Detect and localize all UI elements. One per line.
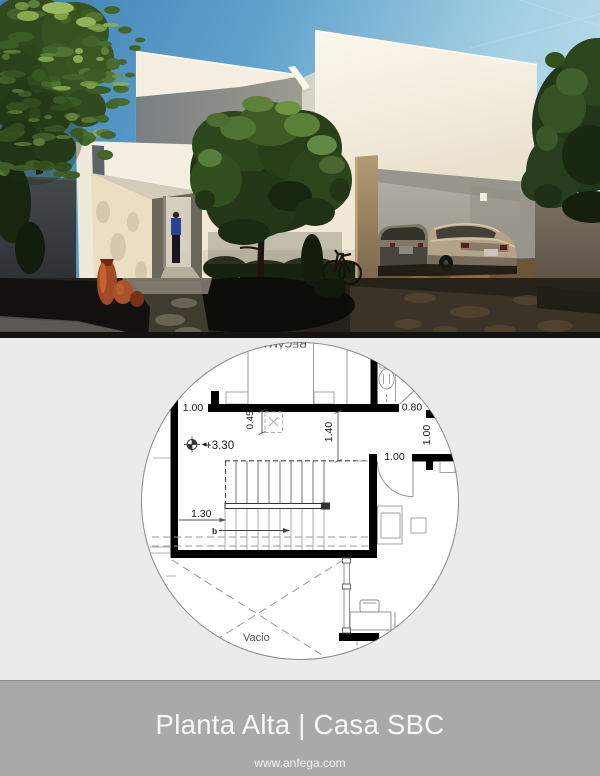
svg-text:0.45: 0.45 bbox=[245, 411, 256, 430]
svg-text:0.80: 0.80 bbox=[402, 402, 423, 414]
svg-text:1.00: 1.00 bbox=[183, 402, 204, 414]
svg-text:Vacio: Vacio bbox=[243, 632, 270, 644]
svg-text:1.40: 1.40 bbox=[323, 422, 335, 443]
svg-text:+3.30: +3.30 bbox=[205, 440, 234, 452]
svg-text:1.00: 1.00 bbox=[421, 425, 433, 446]
svg-text:b: b bbox=[212, 526, 217, 536]
svg-text:1.00: 1.00 bbox=[384, 451, 405, 463]
svg-text:1.30: 1.30 bbox=[191, 508, 212, 520]
